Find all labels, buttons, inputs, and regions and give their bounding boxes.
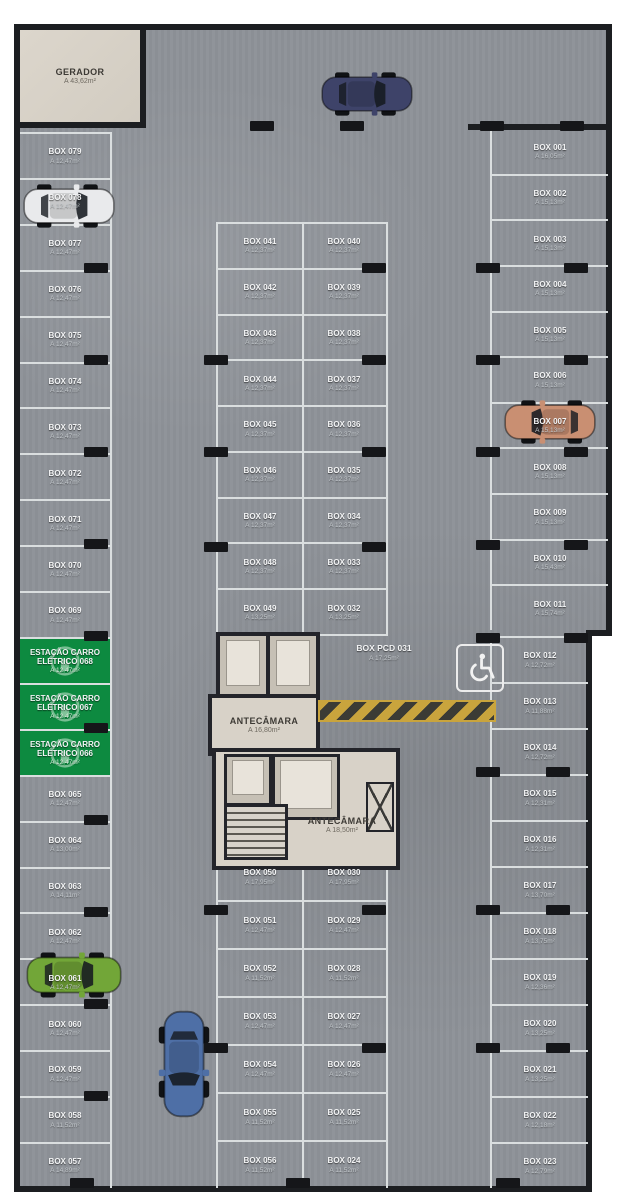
elevator-cab <box>276 640 310 686</box>
parking-stall: BOX 039 A 12,37m² <box>302 270 386 316</box>
stall-area: A 12,37m² <box>329 431 359 438</box>
stall-label: BOX 057 <box>49 1157 82 1166</box>
stall-label: BOX 019 <box>524 973 557 982</box>
parking-stall: BOX 074 A 12,47m² <box>20 364 110 410</box>
parking-stall: BOX 053 A 12,47m² <box>218 998 302 1046</box>
structural-pillar <box>84 355 108 365</box>
structural-pillar <box>84 631 108 641</box>
stall-area: A 12,37m² <box>245 293 275 300</box>
structural-pillar <box>84 263 108 273</box>
stall-label: BOX 056 <box>244 1156 277 1165</box>
stall-area: A 12,47m² <box>50 938 80 945</box>
stall-label: BOX 024 <box>328 1156 361 1165</box>
structural-pillar <box>84 1091 108 1101</box>
stall-area: A 12,37m² <box>329 339 359 346</box>
stall-label: BOX 013 <box>524 697 557 706</box>
structural-pillar <box>84 907 108 917</box>
stall-area: A 12,36m² <box>525 984 555 991</box>
right-parking-column-lower: BOX 012 A 12,72m² BOX 013 A 11,88m² BOX … <box>490 636 588 1188</box>
parking-stall: BOX 019 A 12,36m² <box>492 960 588 1006</box>
stall-area: A 12,47m² <box>50 1076 80 1083</box>
parking-stall: BOX 043 A 12,37m² <box>218 316 302 362</box>
stall-label: BOX 033 <box>328 558 361 567</box>
generator-room-area: A 43,62m² <box>64 78 96 85</box>
structural-pillar <box>476 767 500 777</box>
structural-pillar <box>362 263 386 273</box>
wheelchair-icon <box>463 651 497 685</box>
stall-label: BOX 049 <box>244 604 277 613</box>
parking-stall: BOX 020 A 13,25m² <box>492 1006 588 1052</box>
stall-area: A 12,37m² <box>245 568 275 575</box>
structural-pillar <box>286 1178 310 1188</box>
stall-label: BOX 064 <box>49 836 82 845</box>
structural-pillar <box>84 815 108 825</box>
pcd-accessible-stall: BOX PCD 031 A 17,25m² <box>318 644 450 662</box>
middle-top-right-column: BOX 040 A 12,37m² BOX 039 A 12,37m² BOX … <box>302 222 388 636</box>
stall-label: BOX 051 <box>244 916 277 925</box>
stall-area: A 15,43m² <box>535 564 565 571</box>
stall-area: A 11,88m² <box>525 708 554 715</box>
stall-label: ESTAÇÃO CARRO ELÉTRICO 067 <box>26 694 104 712</box>
garage-floor-plan: GERADOR A 43,62m² BOX 079 A 12,47m² BOX … <box>0 0 626 1200</box>
antechamber-upper-area: A 16,80m² <box>248 727 280 734</box>
antechamber-upper: ANTECÂMARA A 16,80m² <box>208 694 320 756</box>
parking-stall: BOX 032 A 13,25m² <box>302 590 386 634</box>
parking-stall: BOX 042 A 12,37m² <box>218 270 302 316</box>
stall-area: A 15,13m² <box>535 427 565 434</box>
stall-area: A 15,74m² <box>535 610 565 617</box>
parking-stall: BOX 011 A 15,74m² <box>492 586 608 630</box>
stall-label: BOX 012 <box>524 651 557 660</box>
stall-label: BOX 004 <box>534 280 567 289</box>
parking-stall: BOX 010 A 15,43m² <box>492 541 608 587</box>
stall-label: ESTAÇÃO CARRO ELÉTRICO 068 <box>26 648 104 666</box>
stall-label: BOX 061 <box>49 974 82 983</box>
parking-stall: BOX 026 A 12,47m² <box>302 1046 386 1094</box>
stall-label: BOX 060 <box>49 1020 82 1029</box>
parking-stall: BOX 005 A 15,13m² <box>492 313 608 359</box>
stall-label: BOX 020 <box>524 1019 557 1028</box>
stall-label: BOX 073 <box>49 423 82 432</box>
parking-stall: BOX 060 A 12,47m² <box>20 1006 110 1052</box>
stall-label: BOX 005 <box>534 326 567 335</box>
stall-area: A 12,47m² <box>50 387 80 394</box>
stall-label: BOX 029 <box>328 916 361 925</box>
stall-label: BOX 002 <box>534 189 567 198</box>
parking-stall: BOX 015 A 12,31m² <box>492 776 588 822</box>
stall-label: BOX 008 <box>534 463 567 472</box>
stall-area: A 12,47m² <box>50 617 80 624</box>
wheelchair-icon-box <box>456 644 504 692</box>
stall-label: BOX 014 <box>524 743 557 752</box>
stairwell <box>224 804 288 860</box>
stall-area: A 13,70m² <box>525 892 555 899</box>
stall-label: BOX 078 <box>49 193 82 202</box>
stall-label: BOX 038 <box>328 329 361 338</box>
stall-area: A 12,47m² <box>50 158 80 165</box>
structural-pillar <box>564 447 588 457</box>
structural-pillar <box>84 447 108 457</box>
parking-stall: BOX 006 A 15,13m² <box>492 358 608 404</box>
structural-pillar <box>546 905 570 915</box>
stall-area: A 12,47m² <box>50 341 80 348</box>
parking-stall: BOX 044 A 12,37m² <box>218 361 302 407</box>
stall-area: A 12,47m² <box>50 571 80 578</box>
stall-area: A 11,52m² <box>329 1167 358 1174</box>
stall-label: BOX 036 <box>328 420 361 429</box>
stall-area: A 14,89m² <box>50 1167 80 1174</box>
stall-area: A 12,47m² <box>50 1030 80 1037</box>
structural-pillar <box>84 539 108 549</box>
structural-pillar <box>564 355 588 365</box>
middle-bottom-left-column: BOX 050 A 17,95m² BOX 051 A 12,47m² BOX … <box>216 852 304 1188</box>
stall-label: BOX 053 <box>244 1012 277 1021</box>
stall-area: A 15,13m² <box>535 245 565 252</box>
parking-stall: BOX 028 A 11,52m² <box>302 950 386 998</box>
stall-area: A 12,47m² <box>50 295 80 302</box>
stall-label: BOX 034 <box>328 512 361 521</box>
stall-area: A 15,13m² <box>535 290 565 297</box>
stall-label: BOX PCD 031 <box>356 644 411 654</box>
parking-stall: BOX 037 A 12,37m² <box>302 361 386 407</box>
structural-pillar <box>564 540 588 550</box>
structural-pillar <box>362 355 386 365</box>
stall-label: BOX 011 <box>534 600 566 609</box>
structural-pillar <box>84 999 108 1009</box>
stall-label: BOX 009 <box>534 508 567 517</box>
structural-pillar <box>204 1043 228 1053</box>
stall-label: BOX 039 <box>328 283 361 292</box>
antechamber-upper-label: ANTECÂMARA <box>230 716 299 726</box>
stall-label: BOX 062 <box>49 928 82 937</box>
stall-label: BOX 045 <box>244 420 277 429</box>
stall-area: A 12,47m² <box>50 433 80 440</box>
stall-label: BOX 077 <box>49 239 82 248</box>
stall-label: BOX 072 <box>49 469 82 478</box>
stall-area: A 12,18m² <box>525 1122 555 1129</box>
stall-label: BOX 006 <box>534 371 567 380</box>
parking-stall: ESTAÇÃO CARRO ELÉTRICO 066 A 12,47m² <box>20 731 110 777</box>
wall-generator-bottom <box>14 122 146 128</box>
stall-area: A 12,47m² <box>50 667 80 674</box>
stall-area: A 17,95m² <box>329 879 359 886</box>
stall-area: A 13,25m² <box>525 1030 555 1037</box>
parking-stall: BOX 045 A 12,37m² <box>218 407 302 453</box>
parking-stall: BOX 012 A 12,72m² <box>492 638 588 684</box>
structural-pillar <box>476 905 500 915</box>
stall-area: A 12,37m² <box>245 339 275 346</box>
parking-stall: BOX 009 A 15,13m² <box>492 495 608 541</box>
parking-stall: BOX 051 A 12,47m² <box>218 902 302 950</box>
stall-area: A 12,47m² <box>50 713 80 720</box>
parking-stall: BOX 052 A 11,52m² <box>218 950 302 998</box>
stall-area: A 15,13m² <box>535 336 565 343</box>
structural-pillar <box>362 905 386 915</box>
structural-pillar <box>362 447 386 457</box>
stall-area: A 12,47m² <box>329 927 359 934</box>
stall-area: A 12,37m² <box>245 431 275 438</box>
stall-label: BOX 007 <box>534 417 567 426</box>
stall-area: A 12,79m² <box>525 1168 555 1175</box>
structural-pillar <box>84 723 108 733</box>
parking-stall: BOX 014 A 12,72m² <box>492 730 588 776</box>
stall-area: A 14,11m² <box>50 892 79 899</box>
structural-pillar <box>564 263 588 273</box>
stall-label: BOX 079 <box>49 147 82 156</box>
stall-area: A 13,25m² <box>245 614 275 621</box>
structural-pillar <box>362 542 386 552</box>
parking-stall: BOX 055 A 11,52m² <box>218 1094 302 1142</box>
elevator-cab <box>226 640 260 686</box>
parking-stall: BOX 008 A 15,13m² <box>492 449 608 495</box>
car-top-view-navy <box>318 70 416 118</box>
stall-area: A 11,52m² <box>245 1167 274 1174</box>
stall-area: A 11,52m² <box>50 1122 79 1129</box>
stall-label: BOX 047 <box>244 512 277 521</box>
stall-label: BOX 022 <box>524 1111 557 1120</box>
safety-hatch-strip <box>318 700 496 722</box>
stall-area: A 13,25m² <box>525 1076 555 1083</box>
stall-label: BOX 043 <box>244 329 277 338</box>
stall-area: A 12,37m² <box>329 522 359 529</box>
stall-area: A 12,37m² <box>245 385 275 392</box>
stall-area: A 12,47m² <box>329 1071 359 1078</box>
right-parking-column-upper: BOX 001 A 16,05m² BOX 002 A 15,13m² BOX … <box>490 130 608 630</box>
stall-label: BOX 063 <box>49 882 82 891</box>
lower-core-block: ANTECÂMARA A 18,50m² <box>212 748 400 870</box>
structural-pillar <box>204 355 228 365</box>
stall-area: A 12,47m² <box>245 1071 275 1078</box>
elevator-shaft <box>224 754 272 806</box>
stall-label: BOX 001 <box>534 143 567 152</box>
parking-stall: BOX 018 A 13,75m² <box>492 914 588 960</box>
parking-stall: BOX 070 A 12,47m² <box>20 547 110 593</box>
stall-area: A 13,75m² <box>525 938 555 945</box>
stall-label: ESTAÇÃO CARRO ELÉTRICO 066 <box>26 740 104 758</box>
structural-pillar <box>476 447 500 457</box>
stall-area: A 12,37m² <box>245 247 275 254</box>
stall-area: A 15,13m² <box>535 473 565 480</box>
structural-pillar <box>496 1178 520 1188</box>
stall-label: BOX 065 <box>49 790 82 799</box>
stall-area: A 12,37m² <box>329 385 359 392</box>
parking-stall: BOX 057 A 14,89m² <box>20 1144 110 1188</box>
middle-top-left-column: BOX 041 A 12,37m² BOX 042 A 12,37m² BOX … <box>216 222 304 636</box>
stall-label: BOX 015 <box>524 789 557 798</box>
stall-area: A 17,25m² <box>369 655 399 662</box>
parking-stall: BOX 046 A 12,37m² <box>218 453 302 499</box>
parking-stall: BOX 016 A 12,31m² <box>492 822 588 868</box>
stall-label: BOX 026 <box>328 1060 361 1069</box>
stall-area: A 15,13m² <box>535 519 565 526</box>
parking-stall: BOX 049 A 13,25m² <box>218 590 302 634</box>
stall-area: A 12,47m² <box>50 984 80 991</box>
structural-pillar <box>476 633 500 643</box>
parking-stall: BOX 054 A 12,47m² <box>218 1046 302 1094</box>
stall-label: BOX 071 <box>49 515 82 524</box>
elevator-shaft <box>266 636 316 696</box>
stall-area: A 13,00m² <box>50 846 80 853</box>
left-parking-column: BOX 079 A 12,47m² BOX 078 A 12,47m² BOX … <box>20 132 112 1188</box>
stall-area: A 12,37m² <box>329 476 359 483</box>
structural-pillar <box>560 121 584 131</box>
stall-area: A 12,47m² <box>50 800 80 807</box>
elevator-shaft-block <box>216 632 320 700</box>
stall-area: A 12,47m² <box>50 525 80 532</box>
stall-area: A 12,47m² <box>245 927 275 934</box>
stall-area: A 12,37m² <box>245 476 275 483</box>
stall-label: BOX 040 <box>328 237 361 246</box>
generator-room-label: GERADOR <box>56 67 105 77</box>
stall-label: BOX 035 <box>328 466 361 475</box>
stall-label: BOX 069 <box>49 606 82 615</box>
stall-area: A 12,37m² <box>329 293 359 300</box>
structural-pillar <box>204 905 228 915</box>
stall-label: BOX 028 <box>328 964 361 973</box>
stall-label: BOX 030 <box>328 868 361 877</box>
generator-room: GERADOR A 43,62m² <box>20 30 140 122</box>
stall-label: BOX 025 <box>328 1108 361 1117</box>
stall-label: BOX 075 <box>49 331 82 340</box>
stall-area: A 12,47m² <box>50 203 80 210</box>
stall-area: A 12,47m² <box>50 249 80 256</box>
stall-label: BOX 074 <box>49 377 82 386</box>
stall-area: A 16,05m² <box>535 153 565 160</box>
parking-stall: BOX 041 A 12,37m² <box>218 224 302 270</box>
stall-area: A 11,52m² <box>329 975 358 982</box>
stall-label: BOX 037 <box>328 375 361 384</box>
structural-pillar <box>204 542 228 552</box>
stall-area: A 11,52m² <box>245 1119 274 1126</box>
structural-pillar <box>546 767 570 777</box>
parking-stall: BOX 076 A 12,47m² <box>20 272 110 318</box>
structural-pillar <box>476 355 500 365</box>
structural-pillar <box>564 633 588 643</box>
car-top-view-blue <box>156 1008 212 1120</box>
stall-label: BOX 059 <box>49 1065 82 1074</box>
parking-stall: BOX 048 A 12,37m² <box>218 544 302 590</box>
stall-label: BOX 042 <box>244 283 277 292</box>
structural-pillar <box>250 121 274 131</box>
parking-stall: BOX 025 A 11,52m² <box>302 1094 386 1142</box>
parking-stall: BOX 079 A 12,47m² <box>20 134 110 180</box>
stall-area: A 12,47m² <box>245 1023 275 1030</box>
stall-area: A 12,47m² <box>329 1023 359 1030</box>
parking-stall: BOX 047 A 12,37m² <box>218 499 302 545</box>
structural-pillar <box>476 540 500 550</box>
structural-pillar <box>476 1043 500 1053</box>
structural-pillar <box>476 263 500 273</box>
antechamber-lower-area: A 18,50m² <box>296 827 388 834</box>
stall-label: BOX 046 <box>244 466 277 475</box>
structural-pillar <box>362 1043 386 1053</box>
elevator-cab <box>280 760 332 809</box>
parking-stall: BOX 004 A 15,13m² <box>492 267 608 313</box>
parking-stall: BOX 013 A 11,88m² <box>492 684 588 730</box>
stall-label: BOX 054 <box>244 1060 277 1069</box>
parking-stall: BOX 003 A 15,13m² <box>492 221 608 267</box>
parking-stall: BOX 022 A 12,18m² <box>492 1098 588 1144</box>
parking-stall: BOX 064 A 13,00m² <box>20 823 110 869</box>
parking-stall: BOX 017 A 13,70m² <box>492 868 588 914</box>
stall-area: A 12,31m² <box>525 800 555 807</box>
structural-pillar <box>70 1178 94 1188</box>
stall-area: A 11,52m² <box>245 975 274 982</box>
stall-label: BOX 055 <box>244 1108 277 1117</box>
structural-pillar <box>546 1043 570 1053</box>
stall-label: BOX 052 <box>244 964 277 973</box>
stall-label: BOX 010 <box>534 554 567 563</box>
stall-label: BOX 041 <box>244 237 277 246</box>
stall-area: A 12,72m² <box>525 662 555 669</box>
stall-label: BOX 076 <box>49 285 82 294</box>
elevator-cab <box>232 760 264 795</box>
stall-area: A 12,31m² <box>525 846 555 853</box>
stall-area: A 15,13m² <box>535 382 565 389</box>
parking-stall: BOX 072 A 12,47m² <box>20 455 110 501</box>
stall-area: A 12,47m² <box>50 479 80 486</box>
stall-label: BOX 027 <box>328 1012 361 1021</box>
parking-stall: BOX 021 A 13,25m² <box>492 1052 588 1098</box>
stall-label: BOX 070 <box>49 561 82 570</box>
stall-label: BOX 048 <box>244 558 277 567</box>
stall-label: BOX 058 <box>49 1111 82 1120</box>
stall-area: A 12,47m² <box>50 759 80 766</box>
stall-area: A 12,37m² <box>329 568 359 575</box>
parking-stall: ESTAÇÃO CARRO ELÉTRICO 068 A 12,47m² <box>20 639 110 685</box>
stall-area: A 17,95m² <box>245 879 275 886</box>
stall-area: A 15,13m² <box>535 199 565 206</box>
stall-area: A 13,25m² <box>329 614 359 621</box>
stall-area: A 12,72m² <box>525 754 555 761</box>
parking-stall: BOX 024 A 11,52m² <box>302 1142 386 1188</box>
parking-stall: BOX 002 A 15,13m² <box>492 176 608 222</box>
stall-area: A 12,37m² <box>329 247 359 254</box>
antechamber-lower-label: ANTECÂMARA <box>296 816 388 826</box>
antechamber-lower: ANTECÂMARA A 18,50m² <box>296 816 388 834</box>
structural-pillar <box>204 447 228 457</box>
stall-label: BOX 050 <box>244 868 277 877</box>
parking-stall: BOX 035 A 12,37m² <box>302 453 386 499</box>
parking-stall: BOX 001 A 16,05m² <box>492 130 608 176</box>
structural-pillar <box>340 121 364 131</box>
stall-label: BOX 023 <box>524 1157 557 1166</box>
stall-area: A 11,52m² <box>329 1119 358 1126</box>
elevator-shaft <box>220 636 266 696</box>
stall-label: BOX 017 <box>524 881 557 890</box>
stall-label: BOX 018 <box>524 927 557 936</box>
wall-generator-right <box>140 24 146 128</box>
stall-label: BOX 021 <box>524 1065 557 1074</box>
stall-area: A 12,37m² <box>245 522 275 529</box>
stall-label: BOX 044 <box>244 375 277 384</box>
stall-label: BOX 016 <box>524 835 557 844</box>
structural-pillar <box>480 121 504 131</box>
stall-label: BOX 003 <box>534 235 567 244</box>
car-top-view-blue-svg <box>156 1008 212 1120</box>
middle-bottom-right-column: BOX 030 A 17,95m² BOX 029 A 12,47m² BOX … <box>302 852 388 1188</box>
stall-label: BOX 032 <box>328 604 361 613</box>
parking-stall: BOX 058 A 11,52m² <box>20 1098 110 1144</box>
parking-stall: BOX 027 A 12,47m² <box>302 998 386 1046</box>
parking-stall: BOX 034 A 12,37m² <box>302 499 386 545</box>
